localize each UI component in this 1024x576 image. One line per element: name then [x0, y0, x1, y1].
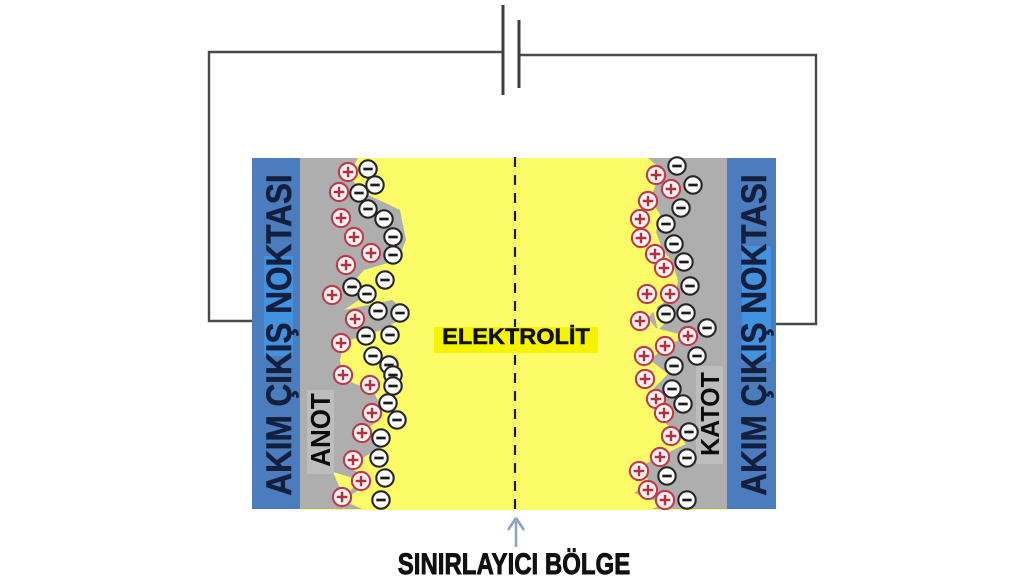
svg-text:AKIM ÇIKIŞ NOKTASI: AKIM ÇIKIŞ NOKTASI: [260, 174, 299, 495]
svg-text:ELEKTROLİT: ELEKTROLİT: [442, 324, 590, 349]
svg-text:AKIM ÇIKIŞ NOKTASI: AKIM ÇIKIŞ NOKTASI: [735, 174, 774, 495]
svg-text:KATOT: KATOT: [696, 372, 725, 456]
svg-text:ANOT: ANOT: [305, 393, 336, 467]
svg-text:SINIRLAYICI BÖLGE: SINIRLAYICI BÖLGE: [398, 546, 630, 576]
